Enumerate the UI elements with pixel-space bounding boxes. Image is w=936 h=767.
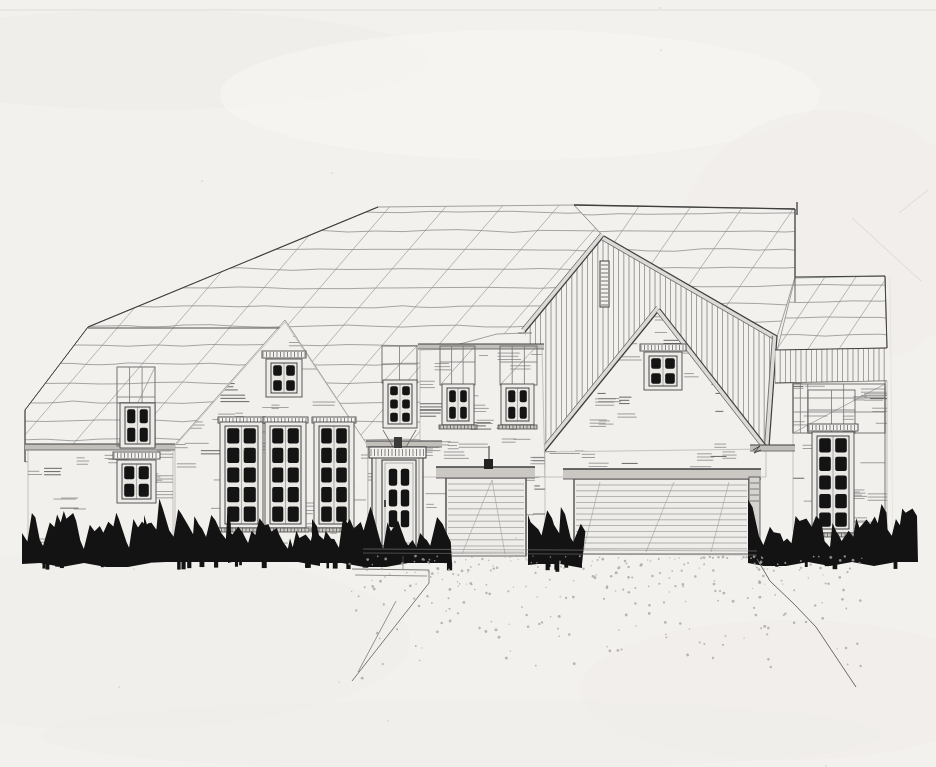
window-center-a xyxy=(439,384,477,429)
window-tall-2 xyxy=(262,417,309,532)
sketch-page xyxy=(0,0,936,767)
window-tall-3 xyxy=(311,417,357,532)
window-entry-transom xyxy=(383,380,417,428)
eave-fascia xyxy=(418,344,544,349)
window-left-wing-lower xyxy=(113,452,160,503)
window-tall-1 xyxy=(217,417,266,532)
garage-single xyxy=(436,467,535,556)
house-elevation-drawing xyxy=(0,0,936,767)
window-center-b xyxy=(498,384,537,429)
window-left-wing-upper xyxy=(120,403,155,448)
gable-louver-vent xyxy=(600,261,609,307)
garage-double xyxy=(563,469,761,554)
right-wing-siding-band xyxy=(775,348,887,383)
window-left-gable xyxy=(262,351,306,397)
eave-fascia xyxy=(366,441,442,447)
window-garage-gable xyxy=(640,344,686,390)
